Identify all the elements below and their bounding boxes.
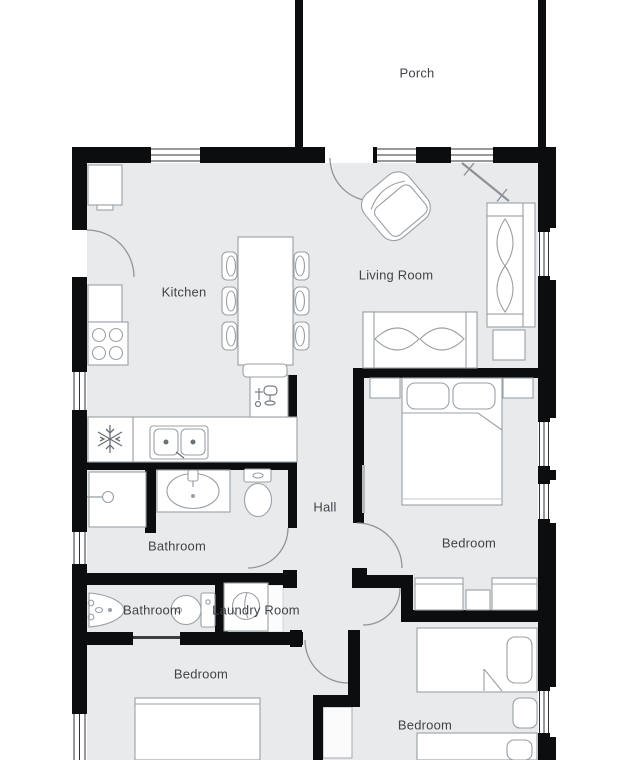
window bbox=[72, 368, 87, 414]
room-label-laundry-room: Laundry Room bbox=[212, 603, 300, 618]
pillow bbox=[407, 383, 449, 409]
double-bed bbox=[135, 698, 260, 760]
refrigerator-icon bbox=[88, 417, 133, 462]
cabinet bbox=[88, 165, 122, 210]
loveseat bbox=[487, 203, 535, 327]
room-label-porch: Porch bbox=[400, 66, 435, 81]
room-label-living-room: Living Room bbox=[359, 268, 433, 283]
window bbox=[72, 528, 87, 568]
window bbox=[447, 147, 497, 163]
window bbox=[538, 228, 550, 280]
porch-right-wall bbox=[538, 0, 546, 148]
sofa bbox=[363, 312, 477, 368]
toilet bbox=[244, 469, 272, 517]
window bbox=[538, 480, 550, 523]
stove-icon bbox=[88, 322, 128, 365]
dining-chair bbox=[243, 364, 287, 377]
room-label-bathroom-main: Bathroom bbox=[148, 539, 206, 554]
room-label-bedroom-left: Bedroom bbox=[174, 667, 228, 682]
vanity-sink bbox=[157, 470, 230, 512]
window bbox=[538, 687, 550, 737]
porch-left-wall bbox=[295, 0, 303, 148]
floor-plan: Porch Kitchen Living Room Hall Bathroom … bbox=[0, 0, 623, 760]
window bbox=[72, 710, 87, 760]
shower bbox=[87, 472, 146, 527]
wall-mirror bbox=[362, 465, 365, 513]
floor-plan-drawing bbox=[0, 0, 623, 760]
pillow bbox=[453, 383, 495, 409]
room-label-bathroom-small: Bathroom bbox=[123, 603, 181, 618]
side-table bbox=[493, 330, 525, 360]
window bbox=[147, 147, 204, 163]
single-bed bbox=[417, 733, 537, 760]
single-bed bbox=[417, 628, 537, 692]
closet bbox=[323, 707, 352, 758]
kitchen-sink-icon bbox=[150, 426, 208, 459]
kitchen-island bbox=[238, 237, 293, 377]
nightstand bbox=[370, 378, 400, 398]
bedroom-left-furniture bbox=[135, 698, 260, 760]
window bbox=[373, 147, 420, 163]
pillow bbox=[507, 637, 532, 683]
room-label-bedroom-bottom: Bedroom bbox=[398, 718, 452, 733]
room-label-hall: Hall bbox=[313, 500, 336, 515]
room-label-kitchen: Kitchen bbox=[162, 285, 207, 300]
pillow bbox=[507, 740, 532, 760]
room-label-bedroom-right: Bedroom bbox=[442, 536, 496, 551]
pocket-door bbox=[133, 636, 180, 639]
nightstand bbox=[503, 378, 533, 398]
window bbox=[538, 418, 550, 470]
nightstand bbox=[513, 698, 537, 728]
counter bbox=[88, 285, 122, 322]
double-bed bbox=[402, 378, 502, 505]
dishwasher-icon bbox=[250, 375, 288, 417]
